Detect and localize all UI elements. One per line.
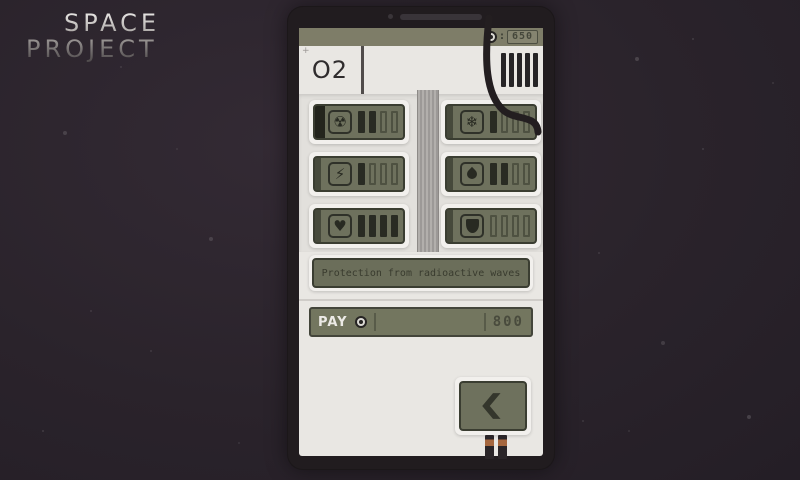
back-chevron-icon [480,392,506,420]
back-button[interactable] [455,377,531,435]
o2-gauge [501,53,538,87]
camera-dot-icon [388,14,393,19]
slot-panel: ♥ [313,208,405,244]
lightning-icon: ⚡ [328,162,352,186]
upgrade-bars [358,163,398,185]
o2-row: + O2 [299,46,543,94]
currency-box: 650 [507,30,538,44]
slot-heat[interactable] [441,152,541,196]
speaker-slot [400,14,482,20]
slot-freeze[interactable]: ❄ [441,100,541,144]
upgrade-bars [490,163,530,185]
slot-energy[interactable]: ⚡ [309,152,409,196]
flame-glyph [465,167,479,181]
screen-seam [299,299,543,301]
center-rail [417,90,439,252]
upgrade-bar [512,215,519,237]
slots-left-column: ☢ ⚡ ♥ [309,94,409,252]
connector-pin [498,435,507,459]
upgrade-bar [501,163,508,185]
connector-pin [485,435,494,459]
upgrade-bar [358,163,365,185]
upgrade-bar [380,163,387,185]
screen-header: : 650 [299,28,543,46]
description-text: Protection from radioactive waves [322,268,521,279]
currency-separator: : [500,31,504,42]
upgrade-bar [369,111,376,133]
slot-health[interactable]: ♥ [309,204,409,248]
device-screen: : 650 + O2 ☢ [299,28,543,456]
upgrade-bars [358,111,398,133]
slot-panel: ⚡ [313,156,405,192]
o2-label: O2 [312,56,348,84]
logo-line-space: SPACE [26,10,160,36]
o2-gauge-bar [501,53,506,87]
upgrade-bar [512,163,519,185]
slot-panel [445,208,537,244]
gear-coin-icon [485,31,497,43]
upgrade-bar [369,163,376,185]
heart-icon: ♥ [328,214,352,238]
slot-shield[interactable] [441,204,541,248]
radiation-icon: ☢ [328,110,352,134]
divider [484,313,486,331]
game-logo: SPACE PROJECT [26,10,160,63]
lightning-glyph: ⚡ [335,167,346,182]
plus-mark: + [302,47,310,56]
slot-panel: ❄ [445,104,537,140]
o2-gauge-bar [517,53,522,87]
back-panel [459,381,527,431]
upgrade-bar [512,111,519,133]
o2-gauge-bar [533,53,538,87]
o2-label-cell: + O2 [299,46,364,94]
upgrade-bar [380,215,387,237]
upgrade-bar [523,215,530,237]
upgrade-bars [490,215,530,237]
upgrade-bar [369,215,376,237]
divider [374,313,376,331]
upgrade-bar [501,111,508,133]
shield-icon [460,214,484,238]
currency-value: 650 [512,31,533,42]
heart-glyph: ♥ [333,219,346,234]
upgrade-bar [523,163,530,185]
upgrade-bar [358,111,365,133]
snowflake-glyph: ❄ [466,115,479,130]
radiation-glyph: ☢ [333,115,346,130]
shield-glyph [466,219,479,233]
upgrade-bars [358,215,398,237]
upgrade-bar [490,163,497,185]
star-field [0,0,2,2]
logo-line-project: PROJECT [26,36,160,62]
pay-price: 800 [493,314,524,330]
upgrade-bar [391,215,398,237]
snowflake-icon: ❄ [460,110,484,134]
upgrade-bar [391,163,398,185]
slot-radiation[interactable]: ☢ [309,100,409,144]
slot-panel [445,156,537,192]
upgrade-bar [358,215,365,237]
flame-icon [460,162,484,186]
upgrade-device: : 650 + O2 ☢ [287,6,555,470]
upgrade-bar [501,215,508,237]
upgrade-slots: ☢ ⚡ ♥ [299,94,543,252]
o2-gauge-bar [525,53,530,87]
upgrade-bar [523,111,530,133]
description-box: Protection from radioactive waves [309,255,533,291]
coin-icon [355,316,367,328]
upgrade-bar [490,111,497,133]
pay-button[interactable]: PAY 800 [309,307,533,337]
pay-label: PAY [318,315,348,330]
description-panel: Protection from radioactive waves [312,258,530,288]
slots-right-column: ❄ [441,94,541,252]
o2-gauge-bar [509,53,514,87]
upgrade-bar [490,215,497,237]
slot-panel: ☢ [313,104,405,140]
upgrade-bar [380,111,387,133]
upgrade-bars [490,111,530,133]
upgrade-bar [391,111,398,133]
